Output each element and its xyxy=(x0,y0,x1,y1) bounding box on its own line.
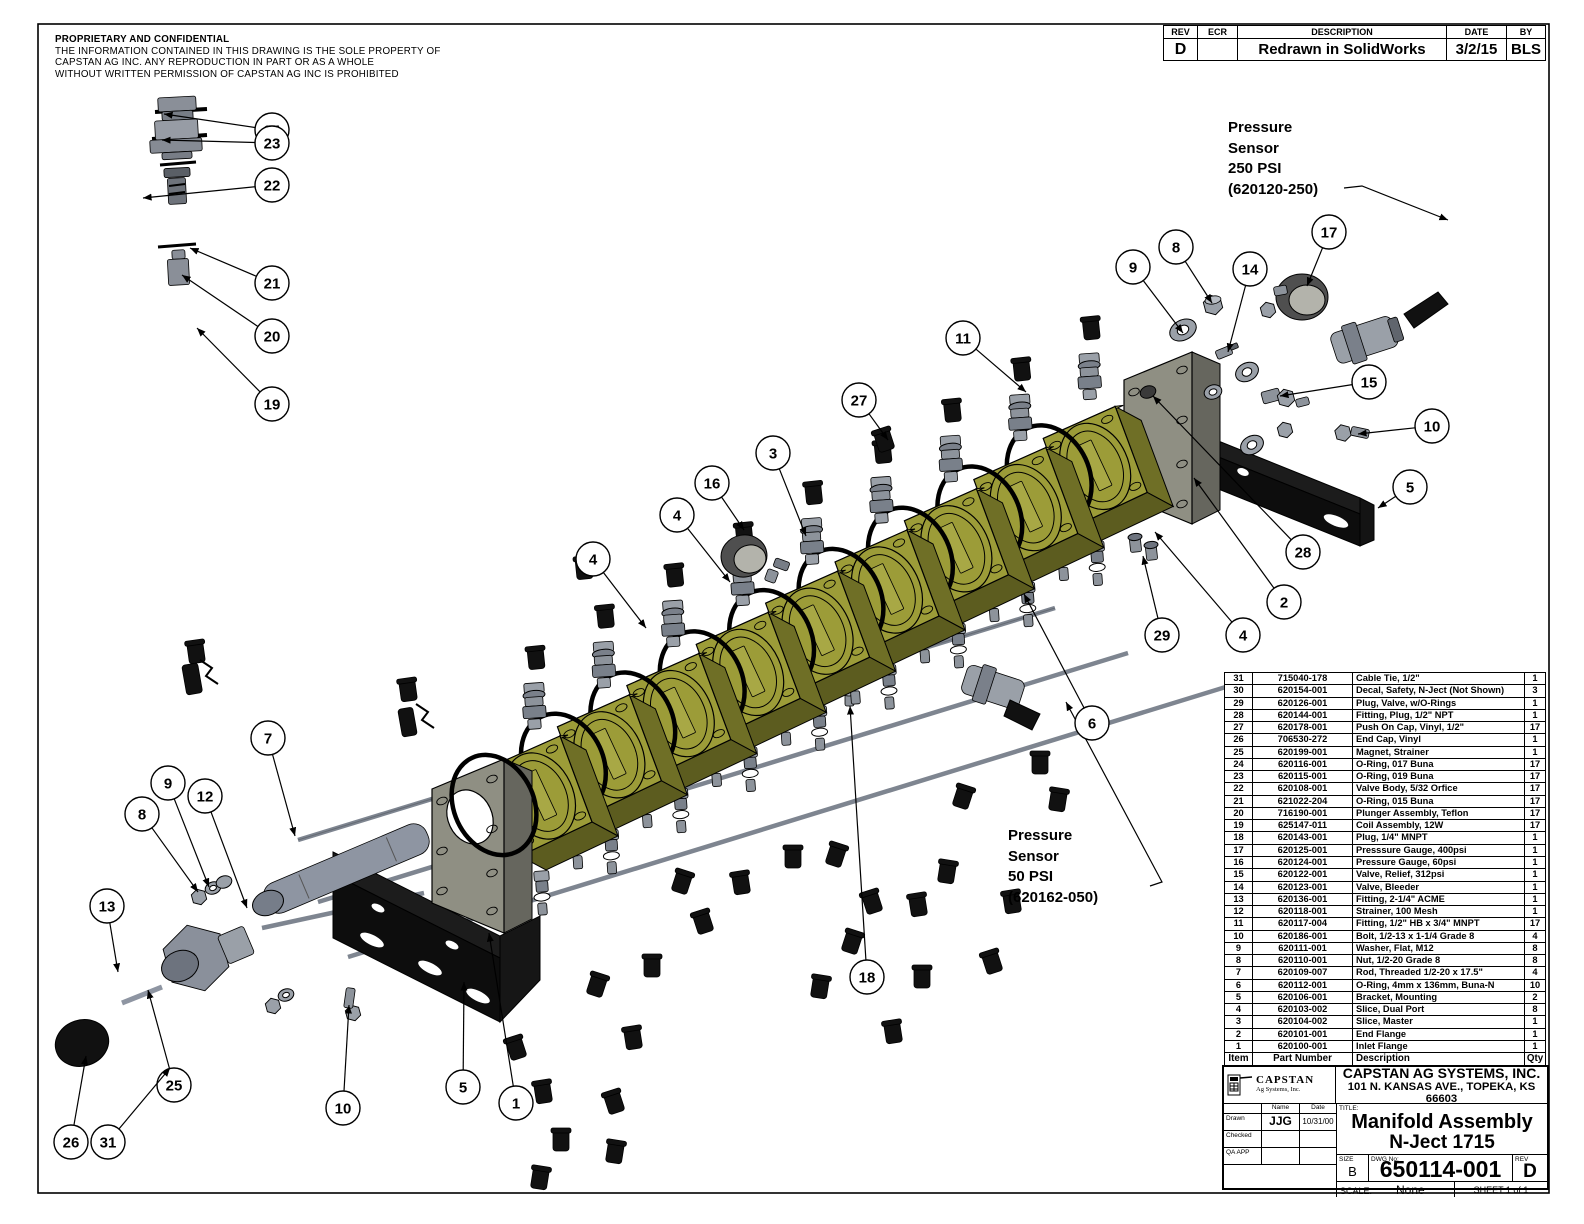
svg-text:10: 10 xyxy=(1424,418,1441,435)
part-number: 715040-178 xyxy=(1253,673,1353,685)
part-qty: 4 xyxy=(1525,967,1545,979)
svg-text:19: 19 xyxy=(264,396,281,413)
balloon-31: 31 xyxy=(91,1068,170,1159)
part-number: 620178-001 xyxy=(1253,722,1353,734)
balloon-15: 15 xyxy=(1280,365,1386,399)
balloon-10: 10 xyxy=(1358,409,1449,443)
svg-text:26: 26 xyxy=(63,1134,80,1151)
svg-text:7: 7 xyxy=(264,730,272,747)
proprietary-line: CAPSTAN AG INC. ANY REPRODUCTION IN PART… xyxy=(55,57,485,69)
pressure-label-line: 50 PSI xyxy=(1008,867,1098,888)
part-qty: 8 xyxy=(1525,955,1545,967)
svg-text:31: 31 xyxy=(100,1134,117,1151)
part-item: 12 xyxy=(1225,906,1253,918)
part-number: 620126-001 xyxy=(1253,698,1353,710)
pressure-label-line: (620120-250) xyxy=(1228,180,1318,201)
part-qty: 8 xyxy=(1525,1004,1545,1016)
part-item: 25 xyxy=(1225,747,1253,759)
part-number: 706530-272 xyxy=(1253,734,1353,746)
pressure-label-line: Sensor xyxy=(1008,847,1098,868)
part-description: Valve, Relief, 312psi xyxy=(1353,869,1525,881)
part-description: Cable Tie, 1/2" xyxy=(1353,673,1525,685)
part-qty: 17 xyxy=(1525,796,1545,808)
balloon-3: 3 xyxy=(756,436,806,536)
drawing-scale: None xyxy=(1396,1183,1425,1197)
part-description: Push On Cap, Vinyl, 1/2" xyxy=(1353,722,1525,734)
balloon-21: 21 xyxy=(190,248,289,300)
part-item: 27 xyxy=(1225,722,1253,734)
title-line-2: N-Ject 1715 xyxy=(1337,1133,1547,1153)
part-item: 6 xyxy=(1225,980,1253,992)
part-item: 16 xyxy=(1225,857,1253,869)
part-qty: 4 xyxy=(1525,931,1545,943)
part-item: 10 xyxy=(1225,931,1253,943)
rev-col-header: REV xyxy=(1164,26,1198,39)
revision-by: BLS xyxy=(1507,39,1545,60)
part-qty: 1 xyxy=(1525,857,1545,869)
part-qty: 1 xyxy=(1525,1029,1545,1041)
svg-text:8: 8 xyxy=(1172,239,1180,256)
revision-date: 3/2/15 xyxy=(1447,39,1507,60)
svg-text:8: 8 xyxy=(138,806,146,823)
part-number: 620199-001 xyxy=(1253,747,1353,759)
part-item: 21 xyxy=(1225,796,1253,808)
drawing-title: TITLE: Manifold Assembly N-Ject 1715 xyxy=(1337,1104,1547,1155)
svg-text:9: 9 xyxy=(1129,259,1137,276)
drawing-rev: D xyxy=(1513,1161,1547,1183)
part-description: Fitting, 2-1/4" ACME xyxy=(1353,894,1525,906)
part-number: 625147-011 xyxy=(1253,820,1353,832)
part-item: 20 xyxy=(1225,808,1253,820)
part-description: End Cap, Vinyl xyxy=(1353,734,1525,746)
part-qty: 1 xyxy=(1525,1041,1545,1053)
part-description: O-Ring, 017 Buna xyxy=(1353,759,1525,771)
company-logo: CAPSTAN Ag Systems, Inc. xyxy=(1224,1067,1336,1103)
part-description: Slice, Master xyxy=(1353,1016,1525,1028)
svg-text:23: 23 xyxy=(264,135,281,152)
part-description: Washer, Flat, M12 xyxy=(1353,943,1525,955)
svg-text:16: 16 xyxy=(704,475,721,492)
svg-text:1: 1 xyxy=(512,1095,520,1112)
part-qty: 17 xyxy=(1525,722,1545,734)
part-item: 29 xyxy=(1225,698,1253,710)
svg-text:28: 28 xyxy=(1295,544,1312,561)
parts-header-description: Description xyxy=(1353,1053,1525,1065)
part-number: 620109-007 xyxy=(1253,967,1353,979)
svg-text:4: 4 xyxy=(673,507,682,524)
part-description: Bracket, Mounting xyxy=(1353,992,1525,1004)
svg-text:12: 12 xyxy=(197,788,214,805)
svg-text:29: 29 xyxy=(1154,627,1171,644)
size-cell: SIZEB xyxy=(1337,1155,1369,1181)
svg-text:2: 2 xyxy=(1280,594,1288,611)
part-item: 30 xyxy=(1225,685,1253,697)
scale-cell: SCALE:None xyxy=(1337,1182,1454,1197)
part-description: Plug, 1/4" MNPT xyxy=(1353,832,1525,844)
proprietary-line: THE INFORMATION CONTAINED IN THIS DRAWIN… xyxy=(55,46,485,58)
svg-text:21: 21 xyxy=(264,275,281,292)
part-description: End Flange xyxy=(1353,1029,1525,1041)
part-item: 4 xyxy=(1225,1004,1253,1016)
date-col-header: DATE xyxy=(1447,26,1507,39)
part-qty: 1 xyxy=(1525,698,1545,710)
part-number: 620112-001 xyxy=(1253,980,1353,992)
part-description: Rod, Threaded 1/2-20 x 17.5" xyxy=(1353,967,1525,979)
part-item: 5 xyxy=(1225,992,1253,1004)
svg-text:5: 5 xyxy=(1406,479,1414,496)
part-item: 22 xyxy=(1225,783,1253,795)
title-line-1: Manifold Assembly xyxy=(1337,1111,1547,1133)
part-qty: 1 xyxy=(1525,869,1545,881)
part-item: 13 xyxy=(1225,894,1253,906)
part-description: Presssure Gauge, 400psi xyxy=(1353,845,1525,857)
part-description: Plug, Valve, w/O-Rings xyxy=(1353,698,1525,710)
balloon-7: 7 xyxy=(251,721,295,836)
revision-description: Redrawn in SolidWorks xyxy=(1238,39,1447,60)
svg-text:3: 3 xyxy=(769,445,777,462)
balloon-13: 13 xyxy=(90,889,124,972)
proprietary-notice: PROPRIETARY AND CONFIDENTIAL THE INFORMA… xyxy=(55,34,485,80)
part-number: 620144-001 xyxy=(1253,710,1353,722)
part-description: Coil Assembly, 12W xyxy=(1353,820,1525,832)
part-number: 620118-001 xyxy=(1253,906,1353,918)
part-item: 17 xyxy=(1225,845,1253,857)
pressure-label-line: (620162-050) xyxy=(1008,888,1098,909)
company-name: CAPSTAN AG SYSTEMS, INC. xyxy=(1336,1065,1547,1081)
part-qty: 17 xyxy=(1525,771,1545,783)
part-number: 620115-001 xyxy=(1253,771,1353,783)
capstan-logo-icon xyxy=(1227,1073,1253,1097)
name-header: Name xyxy=(1262,1104,1300,1113)
parts-header-qty: Qty xyxy=(1525,1053,1545,1065)
svg-text:15: 15 xyxy=(1361,374,1378,391)
part-description: Pressure Gauge, 60psi xyxy=(1353,857,1525,869)
part-number: 620104-002 xyxy=(1253,1016,1353,1028)
part-description: O-Ring, 4mm x 136mm, Buna-N xyxy=(1353,980,1525,992)
pressure-label-line: 250 PSI xyxy=(1228,159,1318,180)
description-col-header: DESCRIPTION xyxy=(1238,26,1447,39)
part-qty: 1 xyxy=(1525,747,1545,759)
checked-label: Checked xyxy=(1224,1131,1262,1147)
proprietary-line: WITHOUT WRITTEN PERMISSION OF CAPSTAN AG… xyxy=(55,69,485,81)
pressure-label-line: Sensor xyxy=(1228,139,1318,160)
part-description: O-Ring, 019 Buna xyxy=(1353,771,1525,783)
part-number: 620111-001 xyxy=(1253,943,1353,955)
part-number: 620125-001 xyxy=(1253,845,1353,857)
balloon-17: 17 xyxy=(1307,215,1346,286)
svg-text:4: 4 xyxy=(589,551,598,568)
part-qty: 1 xyxy=(1525,882,1545,894)
revision-table-header: REV ECR DESCRIPTION DATE BY xyxy=(1164,26,1545,39)
engineering-drawing-page: { "notice": { "title": "PROPRIETARY AND … xyxy=(0,0,1584,1224)
part-qty: 1 xyxy=(1525,906,1545,918)
part-description: Valve, Bleeder xyxy=(1353,882,1525,894)
part-item: 28 xyxy=(1225,710,1253,722)
part-description: Nut, 1/2-20 Grade 8 xyxy=(1353,955,1525,967)
drawn-label: Drawn xyxy=(1224,1114,1262,1130)
part-item: 26 xyxy=(1225,734,1253,746)
part-qty: 1 xyxy=(1525,673,1545,685)
part-qty: 17 xyxy=(1525,783,1545,795)
svg-text:9: 9 xyxy=(164,775,172,792)
revision-table: REV ECR DESCRIPTION DATE BY D Redrawn in… xyxy=(1163,25,1546,61)
part-description: Bolt, 1/2-13 x 1-1/4 Grade 8 xyxy=(1353,931,1525,943)
part-item: 1 xyxy=(1225,1041,1253,1053)
balloon-11: 11 xyxy=(946,321,1026,392)
part-qty: 3 xyxy=(1525,685,1545,697)
part-number: 620108-001 xyxy=(1253,783,1353,795)
part-number: 620123-001 xyxy=(1253,882,1353,894)
balloon-14: 14 xyxy=(1228,252,1267,352)
part-item: 24 xyxy=(1225,759,1253,771)
balloon-10: 10 xyxy=(326,1005,360,1125)
part-description: Fitting, Plug, 1/2" NPT xyxy=(1353,710,1525,722)
qa-approved-label: QA APP xyxy=(1224,1148,1262,1164)
pressure-label-line: Pressure xyxy=(1008,826,1098,847)
part-number: 620101-001 xyxy=(1253,1029,1353,1041)
part-description: Strainer, 100 Mesh xyxy=(1353,906,1525,918)
logo-text: CAPSTAN xyxy=(1256,1075,1314,1085)
proprietary-body: THE INFORMATION CONTAINED IN THIS DRAWIN… xyxy=(55,46,485,81)
title-block-company-row: CAPSTAN Ag Systems, Inc. CAPSTAN AG SYST… xyxy=(1224,1067,1547,1104)
pressure-sensor-250-label: PressureSensor250 PSI(620120-250) xyxy=(1228,118,1318,200)
drawn-name: JJG xyxy=(1262,1114,1300,1130)
part-qty: 1 xyxy=(1525,845,1545,857)
parts-header-item: Item xyxy=(1225,1053,1253,1065)
balloon-8: 8 xyxy=(1159,230,1212,303)
part-description: Fitting, 1/2" HB x 3/4" MNPT xyxy=(1353,918,1525,930)
sheet-cell: SHEET 1 of 1 xyxy=(1454,1182,1547,1197)
part-qty: 1 xyxy=(1525,734,1545,746)
balloon-8: 8 xyxy=(125,797,198,892)
svg-text:4: 4 xyxy=(1239,627,1248,644)
part-number: 620103-002 xyxy=(1253,1004,1353,1016)
part-description: Valve Body, 5/32 Orfice xyxy=(1353,783,1525,795)
part-description: Decal, Safety, N-Ject (Not Shown) xyxy=(1353,685,1525,697)
balloon-29: 29 xyxy=(1143,556,1179,652)
part-item: 3 xyxy=(1225,1016,1253,1028)
svg-text:6: 6 xyxy=(1088,715,1096,732)
svg-text:11: 11 xyxy=(955,330,971,347)
proprietary-title: PROPRIETARY AND CONFIDENTIAL xyxy=(55,34,485,46)
part-number: 620122-001 xyxy=(1253,869,1353,881)
part-qty: 1 xyxy=(1525,894,1545,906)
part-qty: 17 xyxy=(1525,759,1545,771)
revision-ecr xyxy=(1198,39,1238,60)
pressure-sensor-50-label: PressureSensor50 PSI(620162-050) xyxy=(1008,826,1098,908)
part-description: Slice, Dual Port xyxy=(1353,1004,1525,1016)
svg-text:10: 10 xyxy=(335,1100,352,1117)
revision-row: D Redrawn in SolidWorks 3/2/15 BLS xyxy=(1164,39,1545,60)
ecr-col-header: ECR xyxy=(1198,26,1238,39)
part-number: 620117-004 xyxy=(1253,918,1353,930)
part-item: 11 xyxy=(1225,918,1253,930)
balloon-16: 16 xyxy=(695,466,744,530)
drawn-date: 10/31/00 xyxy=(1300,1114,1336,1130)
part-item: 14 xyxy=(1225,882,1253,894)
part-item: 23 xyxy=(1225,771,1253,783)
balloon-25: 25 xyxy=(148,990,191,1102)
part-description: Inlet Flange xyxy=(1353,1041,1525,1053)
title-block: CAPSTAN Ag Systems, Inc. CAPSTAN AG SYST… xyxy=(1222,1065,1549,1190)
drawing-size: B xyxy=(1337,1164,1368,1179)
part-qty: 1 xyxy=(1525,710,1545,722)
svg-text:27: 27 xyxy=(851,392,868,409)
part-item: 8 xyxy=(1225,955,1253,967)
part-item: 15 xyxy=(1225,869,1253,881)
parts-list-table: 31715040-178Cable Tie, 1/2"130620154-001… xyxy=(1224,672,1546,1067)
part-number: 621022-204 xyxy=(1253,796,1353,808)
date-header: Date xyxy=(1300,1104,1336,1113)
part-number: 620100-001 xyxy=(1253,1041,1353,1053)
logo-subtext: Ag Systems, Inc. xyxy=(1256,1085,1314,1095)
part-number: 620106-001 xyxy=(1253,992,1353,1004)
part-qty: 17 xyxy=(1525,808,1545,820)
part-qty: 17 xyxy=(1525,918,1545,930)
part-qty: 1 xyxy=(1525,832,1545,844)
part-qty: 2 xyxy=(1525,992,1545,1004)
part-number: 716190-001 xyxy=(1253,808,1353,820)
part-qty: 1 xyxy=(1525,1016,1545,1028)
title-label: TITLE: xyxy=(1339,1105,1359,1112)
part-number: 620110-001 xyxy=(1253,955,1353,967)
part-number: 620116-001 xyxy=(1253,759,1353,771)
svg-text:18: 18 xyxy=(859,969,876,986)
part-number: 620154-001 xyxy=(1253,685,1353,697)
by-col-header: BY xyxy=(1507,26,1545,39)
signature-table: NameDate DrawnJJG10/31/00 Checked QA APP xyxy=(1224,1104,1337,1197)
part-item: 7 xyxy=(1225,967,1253,979)
revision-rev: D xyxy=(1164,39,1198,60)
balloon-26: 26 xyxy=(54,1056,88,1159)
parts-header-part-number: Part Number xyxy=(1253,1053,1353,1065)
part-item: 18 xyxy=(1225,832,1253,844)
rev-cell: REVD xyxy=(1513,1155,1547,1181)
part-description: Magnet, Strainer xyxy=(1353,747,1525,759)
part-number: 620136-001 xyxy=(1253,894,1353,906)
pressure-label-line: Pressure xyxy=(1228,118,1318,139)
part-qty: 17 xyxy=(1525,820,1545,832)
svg-text:5: 5 xyxy=(459,1079,467,1096)
company-address: 101 N. KANSAS AVE., TOPEKA, KS 66603 xyxy=(1336,1081,1547,1105)
part-description: O-Ring, 015 Buna xyxy=(1353,796,1525,808)
part-number: 620186-001 xyxy=(1253,931,1353,943)
svg-text:13: 13 xyxy=(99,898,116,915)
part-qty: 10 xyxy=(1525,980,1545,992)
svg-text:22: 22 xyxy=(264,177,281,194)
part-number: 620124-001 xyxy=(1253,857,1353,869)
svg-text:17: 17 xyxy=(1321,224,1338,241)
part-item: 19 xyxy=(1225,820,1253,832)
part-qty: 8 xyxy=(1525,943,1545,955)
part-number: 620143-001 xyxy=(1253,832,1353,844)
part-item: 31 xyxy=(1225,673,1253,685)
svg-text:20: 20 xyxy=(264,328,281,345)
balloon-5: 5 xyxy=(1378,470,1427,508)
part-item: 2 xyxy=(1225,1029,1253,1041)
part-description: Plunger Assembly, Teflon xyxy=(1353,808,1525,820)
dwg-no-cell: DWG No:650114-001 xyxy=(1369,1155,1513,1181)
svg-text:14: 14 xyxy=(1242,261,1259,278)
part-item: 9 xyxy=(1225,943,1253,955)
svg-text:25: 25 xyxy=(166,1077,183,1094)
balloon-27: 27 xyxy=(842,383,888,440)
